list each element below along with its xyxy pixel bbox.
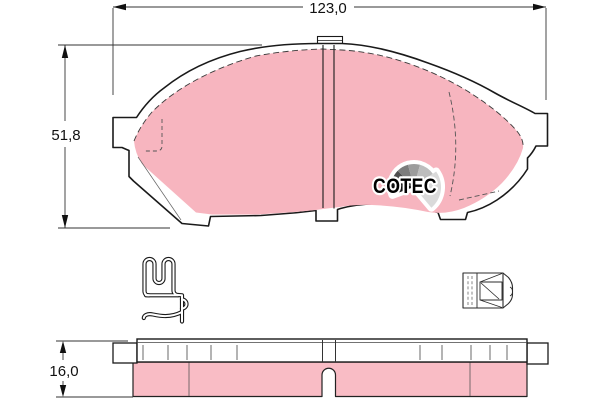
arrow-up-icon	[60, 341, 66, 353]
cotec-logo-text: COTEC	[373, 175, 437, 198]
brake-pad-technical-drawing: 123,0 51,8	[0, 0, 600, 400]
piston-body	[463, 273, 503, 308]
side-plate-right-tab	[527, 343, 548, 364]
dimension-width-label: 123,0	[309, 0, 347, 17]
dimension-thickness-label: 16,0	[49, 363, 78, 380]
arrow-right-icon	[533, 4, 546, 10]
drawing-canvas: 123,0 51,8	[0, 0, 600, 400]
side-view	[113, 339, 548, 397]
dimension-height-label: 51,8	[51, 127, 80, 144]
arrow-left-icon	[113, 4, 126, 10]
piston-nose-bump	[510, 287, 513, 296]
front-view	[113, 37, 548, 227]
arrow-down-icon	[62, 215, 68, 228]
piston-accessory	[463, 273, 513, 308]
side-plate-left-tab	[113, 343, 137, 363]
arrow-up-icon	[62, 45, 68, 58]
piston-nose-cap	[503, 273, 513, 308]
spring-clip-accessory	[144, 259, 187, 322]
side-friction-material	[133, 362, 527, 397]
arrow-down-icon	[60, 385, 66, 397]
